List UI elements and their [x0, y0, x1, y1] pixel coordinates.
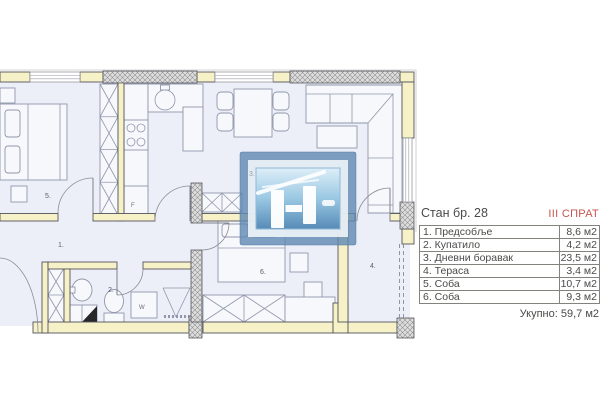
logo-crossbar	[286, 205, 303, 212]
room-area: 9,3 м2	[559, 291, 599, 303]
faucet	[70, 287, 75, 293]
nightstand	[290, 253, 308, 272]
coffee-table	[317, 126, 357, 148]
table-row: 2. Купатило 4,2 м2	[420, 238, 599, 251]
nightstand	[11, 186, 27, 202]
window	[215, 72, 273, 82]
room-area: 10,7 м2	[559, 278, 599, 290]
chair	[217, 113, 233, 131]
logo-pillar	[271, 190, 284, 228]
logo-dash	[322, 200, 335, 206]
label-living: 3.	[249, 171, 255, 178]
room-area: 3,4 м2	[559, 265, 599, 277]
shelf	[0, 88, 15, 103]
room-area: 23,5 м2	[559, 252, 599, 264]
fridge	[124, 186, 148, 215]
stove	[124, 120, 148, 150]
dining-table	[234, 89, 272, 137]
living-wardrobe	[202, 193, 242, 212]
room-area-table: 1. Предсобље 8,6 м2 2. Купатило 4,2 м2 3…	[419, 225, 600, 304]
room-name: 2. Купатило	[420, 239, 559, 251]
table-row: 1. Предсобље 8,6 м2	[420, 226, 599, 238]
dining-set	[217, 89, 289, 137]
room-name: 4. Тераса	[420, 265, 559, 277]
info-panel: Стан бр. 28 III СПРАТ 1. Предсобље 8,6 м…	[419, 206, 600, 320]
label-terrace: 4.	[370, 263, 376, 270]
floor-plan: 1. 2. 3. 4. 5. 6. F W	[0, 0, 420, 400]
floor-label: III СПРАТ	[548, 208, 599, 220]
kitchen-peninsula	[183, 107, 203, 151]
pillow	[5, 110, 20, 137]
pillow	[5, 146, 20, 173]
room-name: 5. Соба	[420, 278, 559, 290]
room-area: 4,2 м2	[559, 239, 599, 251]
dresser	[285, 297, 335, 322]
room-name: 6. Соба	[420, 291, 559, 303]
window	[403, 138, 412, 202]
floorplan-page: 1. 2. 3. 4. 5. 6. F W Стан бр. 28 III СП…	[0, 0, 600, 400]
chair	[217, 92, 233, 110]
logo-watermark	[240, 152, 356, 245]
table-row: 3. Дневни боравак 23,5 м2	[420, 251, 599, 264]
apartment-title: Стан бр. 28	[421, 206, 488, 220]
bedroom-wardrobe	[100, 84, 118, 215]
label-bedroom: 5.	[45, 193, 51, 200]
label-bedroom2: 6.	[260, 269, 266, 276]
table-row: 5. Соба 10,7 м2	[420, 277, 599, 290]
toilet-tank	[104, 313, 124, 322]
logo-panel	[256, 168, 340, 229]
room-name: 1. Предсобље	[420, 226, 559, 238]
table-row: 6. Соба 9,3 м2	[420, 290, 599, 303]
chair	[273, 92, 289, 110]
label-hallway: 1.	[58, 242, 64, 249]
total-area: Укупно: 59,7 м2	[419, 308, 600, 320]
label-washer: W	[139, 305, 145, 311]
room-area: 8,6 м2	[559, 226, 599, 238]
label-fridge: F	[131, 203, 135, 209]
window	[30, 72, 80, 82]
chair	[273, 113, 289, 131]
table-row: 4. Тераса 3,4 м2	[420, 264, 599, 277]
logo-pillar	[303, 186, 316, 224]
room-name: 3. Дневни боравак	[420, 252, 559, 264]
label-bathroom: 2.	[108, 287, 114, 294]
panel-header: Стан бр. 28 III СПРАТ	[419, 206, 600, 220]
faucet	[161, 85, 170, 90]
